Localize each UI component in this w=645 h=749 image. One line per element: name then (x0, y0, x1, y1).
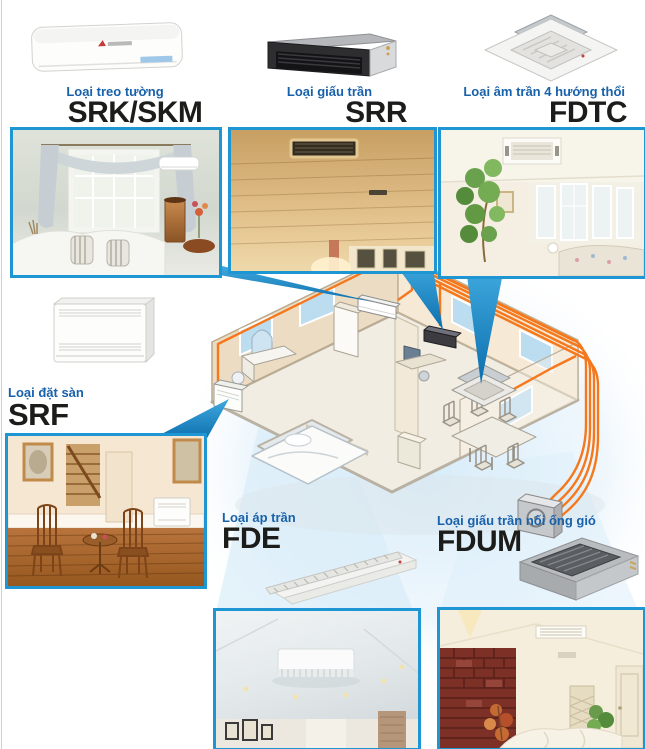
product-model-fdtc: FDTC (438, 98, 641, 128)
concealed-duct-unit-image (258, 24, 408, 84)
windows (537, 184, 633, 240)
house-cutaway (212, 252, 605, 538)
dining-table (452, 417, 536, 457)
ducted-unit-image (512, 526, 645, 604)
product-model-fde: FDE (222, 524, 281, 554)
window-glimpse (405, 251, 425, 268)
side-table (183, 239, 215, 253)
wooden-ceiling-scene (231, 130, 434, 271)
window-glimpse (383, 249, 397, 268)
wardrobe-top (334, 302, 364, 313)
framed-picture (174, 440, 200, 482)
refrigerant-piping (218, 255, 598, 519)
house-floor (212, 312, 578, 492)
small-vent (558, 652, 576, 658)
window (300, 288, 334, 326)
product-model-srf: SRF (8, 399, 69, 430)
flowers (195, 208, 203, 216)
small-vent (369, 190, 387, 195)
cabinet (165, 200, 185, 242)
bathroom-floor (258, 420, 352, 468)
living-room-scene (13, 130, 219, 275)
window-glimpse (357, 249, 375, 268)
dresser-front (242, 356, 254, 382)
pointer-fdtc (466, 268, 504, 384)
dining-chairs (443, 391, 524, 470)
duct-unit-in-house (424, 326, 461, 348)
wall-unit-in-photo (159, 157, 199, 170)
table-legs (470, 446, 514, 470)
dresser-top (242, 346, 296, 365)
floor-unit-room-scene (8, 436, 204, 586)
stool (232, 372, 244, 384)
bed (252, 426, 368, 484)
ceiling-suspended-unit-image (258, 538, 418, 606)
bathtub (278, 425, 322, 458)
desk (396, 354, 446, 369)
window (500, 386, 532, 430)
photo-living-room-wall-unit (10, 127, 222, 278)
closet-top (398, 432, 426, 443)
floor-unit-in-house (214, 380, 248, 412)
bed-headboard (306, 424, 368, 456)
floor-unit-in-photo (154, 498, 190, 526)
photo-floor-unit-room (5, 433, 207, 589)
computer-monitor (404, 346, 420, 364)
ceiling-cassette-unit-image (473, 4, 626, 84)
product-model-srr: SRR (228, 98, 431, 128)
brochure-page: Loại treo tường SRK/SKM Loại giấu trần S… (0, 0, 645, 749)
doorway-light (306, 719, 346, 748)
left-wall (212, 252, 398, 402)
front-wall (460, 342, 578, 458)
bed-duvet-fold (268, 452, 338, 458)
floor-standing-unit-image (44, 292, 160, 372)
photo-pointers (150, 262, 504, 440)
wardrobe (334, 306, 358, 357)
window (240, 316, 272, 355)
partition-wall (395, 316, 418, 440)
display-strip (140, 56, 172, 63)
photo-cassette-room (438, 127, 645, 279)
brick-room-scene (440, 610, 643, 748)
suspended-unit-scene (216, 611, 418, 748)
closet (398, 436, 420, 469)
desk-chair (419, 371, 429, 381)
window (452, 296, 488, 340)
product-model-fdum: FDUM (437, 527, 522, 557)
cassette-unit-in-house (452, 365, 516, 406)
sofa (559, 245, 644, 276)
pillow (285, 434, 311, 446)
product-model-srk: SRK/SKM (40, 98, 230, 128)
hall-door (106, 452, 132, 522)
cassette-room-scene (441, 130, 644, 276)
wall-mounted-unit-image (28, 16, 186, 80)
door-knob (618, 706, 622, 710)
flower-vase (548, 243, 558, 253)
toilet (322, 449, 330, 457)
photo-suspended-unit-hall (213, 608, 421, 749)
dresser-mirror (252, 330, 272, 354)
window (520, 330, 552, 372)
photo-brick-room-grille (437, 607, 645, 749)
wall-unit-in-house (358, 295, 400, 319)
photo-wooden-ceiling-duct (228, 127, 437, 274)
